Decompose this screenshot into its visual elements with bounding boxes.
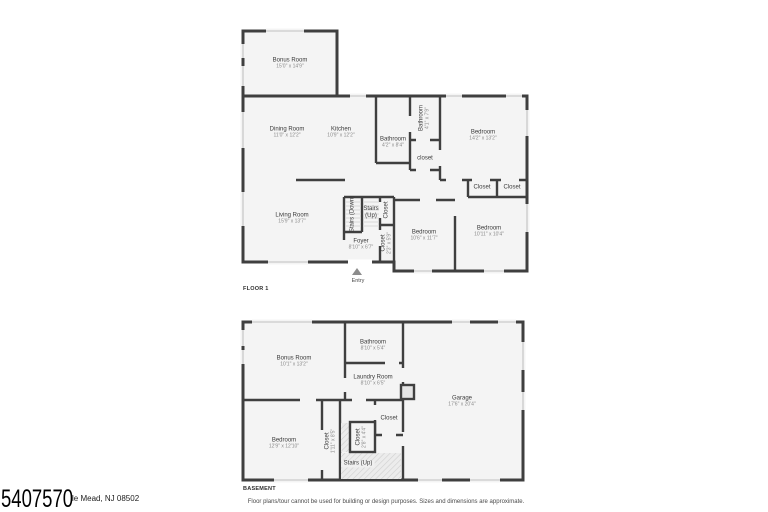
floor1-label-foyer: Foyer8'10" x 6'7" (349, 239, 374, 252)
floor1-label-closet-strip-bottom: Closet2'3" x 5'9" (381, 232, 394, 254)
floor1-label-living-room: Living Room15'9" x 13'7" (275, 213, 308, 226)
basement-label-closet-room: Closet (380, 415, 397, 422)
floor1-label-closet-small: closet (417, 155, 433, 162)
room-name: Stairs (Up) (342, 460, 375, 467)
room-dims: 4'1" x 7'9" (426, 105, 432, 131)
room-dims: 10'1" x 13'2" (277, 363, 312, 369)
room-name: Stairs (Up) (359, 206, 383, 220)
basement-label-garage: Garage17'6" x 20'4" (448, 396, 475, 409)
basement-label-bedroom: Bedroom12'9" x 12'10" (269, 438, 299, 451)
floor-plan-page: Bonus Room15'0" x 14'9" Dining Room11'0"… (0, 0, 768, 512)
room-dims: 12'9" x 12'10" (269, 445, 299, 451)
entry-label: Entry (352, 278, 365, 284)
basement-label-bathroom: Bathroom8'10" x 5'4" (360, 340, 386, 353)
floor1-label-stairs-up: Stairs (Up) (359, 206, 383, 220)
basement-label-closet-tall: Closet1'11" x 8'5" (325, 429, 338, 453)
room-name: Stairs (Down) (349, 196, 356, 232)
room-dims: 10'11" x 10'4" (474, 233, 504, 239)
floor1-label-bedroom-topright: Bedroom14'2" x 13'2" (469, 130, 496, 143)
floor1-label-kitchen: Kitchen10'9" x 12'2" (327, 127, 354, 140)
room-name: Closet (473, 184, 490, 191)
floor1-label-bedroom-middle: Bedroom10'6" x 11'7" (410, 230, 437, 243)
room-name: Closet (503, 184, 520, 191)
room-dims: 2'8" x 4'4" (363, 426, 369, 448)
room-dims: 15'9" x 13'7" (275, 220, 308, 226)
room-dims: 8'10" x 5'4" (360, 347, 386, 353)
room-dims: 1'11" x 8'5" (332, 429, 338, 453)
listing-address: le Mead, NJ 08502 (72, 494, 139, 503)
room-dims: 11'0" x 12'2" (270, 134, 305, 140)
floor1-label-closet-b: Closet (503, 184, 520, 191)
basement-label-bonus-room: Bonus Room10'1" x 13'2" (277, 356, 312, 369)
floor1-caption: FLOOR 1 (243, 286, 269, 292)
floor1-label-closet-strip-top: Closet (383, 201, 390, 218)
disclaimer-text: Floor plans/tour cannot be used for buil… (248, 499, 525, 505)
basement-label-closet-small: Closet2'8" x 4'4" (356, 426, 369, 448)
basement-caption: BASEMENT (243, 486, 276, 492)
room-name: Closet (383, 201, 390, 218)
floor1-label-closet-a: Closet (473, 184, 490, 191)
entry-triangle-icon (352, 268, 362, 275)
room-dims: 15'0" x 14'9" (273, 65, 308, 71)
floor1-label-stairs-down: Stairs (Down) (349, 196, 356, 232)
floor1-label-bathroom-top: Bathroom4'1" x 7'9" (419, 105, 432, 131)
room-dims: 4'2" x 8'4" (380, 144, 406, 150)
floor-plan-drawing (0, 0, 768, 512)
listing-id-watermark: 5407570 (1, 487, 73, 512)
basement-label-laundry-room: Laundry Room8'10" x 6'5" (353, 375, 392, 388)
room-name: Closet (380, 415, 397, 422)
room-dims: 2'3" x 5'9" (388, 232, 394, 254)
basement-label-stairs-up: Stairs (Up) (342, 460, 375, 467)
basement-utility-box (401, 385, 414, 399)
floor1-label-bathroom-hall: Bathroom4'2" x 8'4" (380, 137, 406, 150)
room-name: closet (417, 155, 433, 162)
room-dims: 8'10" x 6'5" (353, 382, 392, 388)
floor1-label-dining-room: Dining Room11'0" x 12'2" (270, 127, 305, 140)
room-dims: 14'2" x 13'2" (469, 137, 496, 143)
room-dims: 10'6" x 11'7" (410, 237, 437, 243)
room-dims: 10'9" x 12'2" (327, 134, 354, 140)
room-dims: 8'10" x 6'7" (349, 246, 374, 252)
room-dims: 17'6" x 20'4" (448, 403, 475, 409)
floor1-label-bonus-room: Bonus Room15'0" x 14'9" (273, 58, 308, 71)
floor1-label-bedroom-right: Bedroom10'11" x 10'4" (474, 226, 504, 239)
